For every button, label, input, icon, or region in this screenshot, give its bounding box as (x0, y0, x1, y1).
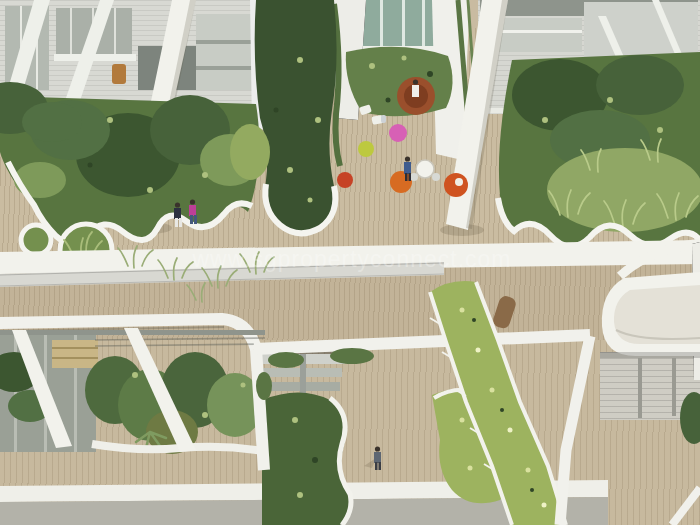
watermark-text: www.sgpropertyconnect.com (191, 246, 511, 272)
person-standing-blue (404, 156, 411, 181)
facade-chair (112, 64, 126, 84)
timber-lounger (491, 294, 517, 330)
hedge-bed (346, 47, 453, 116)
frame-top-chord (254, 335, 590, 349)
pouf-pink (389, 124, 407, 142)
lower-left-level (0, 319, 268, 454)
architectural-rendering: www.sgpropertyconnect.com (0, 0, 700, 525)
courtyard-furniture (337, 104, 518, 330)
diagonal-beam (672, 488, 700, 525)
vine-curtain (250, 0, 337, 233)
vine-bed-left (262, 393, 349, 525)
planter-island-left (0, 82, 270, 245)
white-canopy (600, 272, 700, 444)
corner-hedge (680, 392, 700, 444)
pouf-red (337, 172, 353, 188)
person-walking-lower (364, 446, 381, 470)
rendering-overlay: www.sgpropertyconnect.com (0, 0, 700, 525)
person-on-rust-seat (412, 79, 419, 97)
pouf-lime (358, 141, 374, 157)
planter-island-right (498, 52, 700, 247)
frame-post (256, 349, 264, 470)
chair-orange (444, 173, 468, 197)
